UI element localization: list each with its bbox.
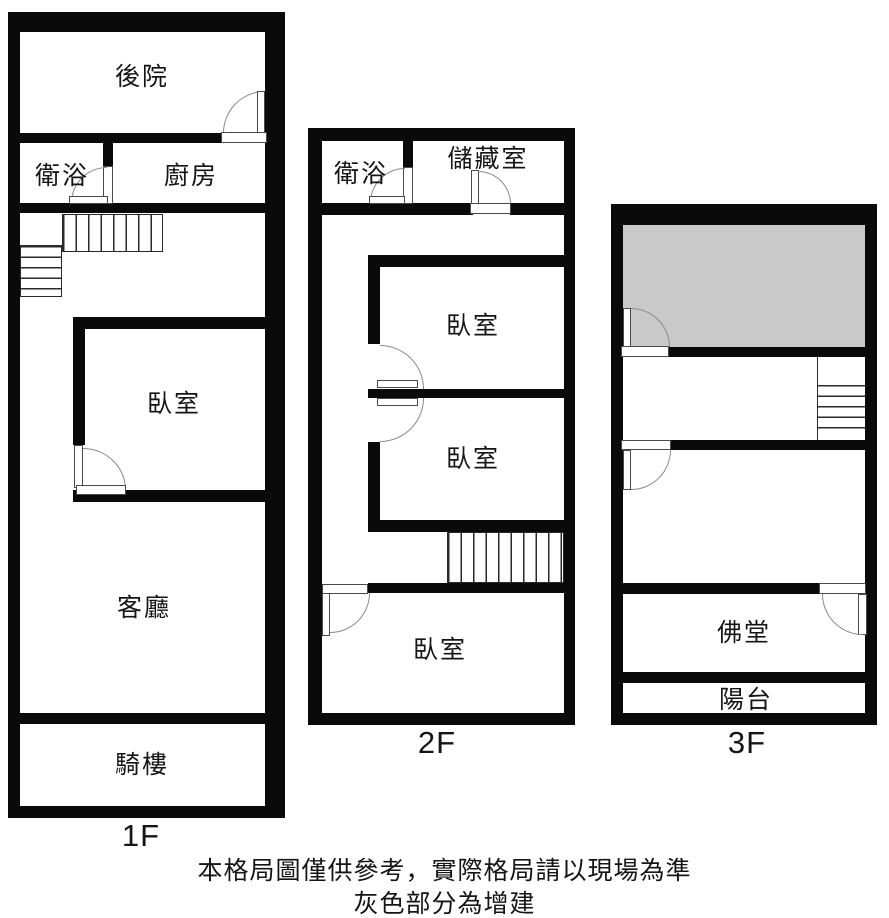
f3-staircase-treads: [817, 385, 865, 432]
f3-outer-wall-left: [611, 204, 623, 725]
f2-outer-wall-left: [308, 128, 322, 725]
f2-storage-door-arc: [478, 171, 511, 204]
f2-bedroom-c-wall-top: [368, 583, 564, 593]
f3-room-label-balcony: 陽台: [719, 680, 773, 716]
f2-room-label-bathroom: 衛浴: [334, 154, 388, 190]
f3-middle-wall: [670, 440, 865, 450]
f1-bedroom-door-leaf: [74, 445, 83, 488]
f1-outer-wall-left: [8, 12, 20, 818]
f2-bedroom-a-wall-top: [368, 255, 564, 267]
footer-legend: 灰色部分為增建: [0, 884, 889, 918]
f3-addition-door-sill: [621, 346, 669, 357]
f2-bedroom-b-door-leaf: [377, 398, 418, 406]
f3-room-door-sill: [621, 440, 671, 450]
f1-backyard-door-sill: [221, 132, 267, 143]
f2-room-label-bedroom-c: 臥室: [413, 630, 467, 666]
f2-staircase: [447, 532, 564, 583]
f2-bathroom-door-leaf: [369, 196, 405, 204]
f1-backyard-wall: [20, 133, 222, 143]
f2-toprow-wall-b: [510, 203, 564, 215]
f3-room-label-hall: 佛堂: [717, 613, 771, 649]
f2-outer-wall-right: [564, 128, 575, 725]
footer-disclaimer: 本格局圖僅供參考，實際格局請以現場為準: [0, 851, 889, 887]
f3-hall-door-arc: [822, 594, 863, 635]
f1-arcade-wall: [20, 713, 265, 724]
f2-bedroom-c-door-arc: [330, 593, 370, 633]
f1-room-label-kitchen: 廚房: [164, 156, 218, 192]
f2-bedroom-b-wall-left: [368, 442, 380, 520]
f1-bedroom-wall-top: [73, 317, 265, 329]
f1-room-label-backyard: 後院: [115, 57, 169, 93]
f2-bedrooms-divider-wall: [368, 389, 564, 398]
f1-kitchen-row-wall: [20, 203, 265, 213]
f2-outer-wall-bottom: [308, 713, 575, 725]
f1-outer-wall-bottom: [8, 806, 285, 818]
f2-bedroom-b-wall-bottom: [368, 520, 564, 532]
f2-room-label-bedroom-a: 臥室: [446, 306, 500, 342]
f1-backyard-door-leaf: [257, 91, 265, 133]
f3-outer-wall-top: [611, 204, 877, 225]
f3-outer-wall-right: [865, 204, 877, 725]
f1-room-label-bedroom: 臥室: [147, 384, 201, 420]
f1-bedroom-wall-left: [73, 329, 85, 445]
f2-room-label-storage: 儲藏室: [447, 139, 528, 175]
f3-addition-wall: [668, 347, 865, 357]
f1-bedroom-door-arc: [83, 448, 126, 490]
floor-plan: 後院 衛浴 廚房 臥室 客廳 騎樓 1F: [0, 0, 889, 918]
f2-storage-door-sill: [470, 203, 511, 214]
f1-staircase-upper-run: [62, 214, 163, 252]
f3-room-door-leaf: [623, 450, 631, 490]
f2-room-label-bedroom-b: 臥室: [446, 439, 500, 475]
f2-bedroom-a-door-leaf: [377, 380, 418, 388]
f2-bedroom-c-door-leaf: [322, 593, 330, 636]
f3-floor-label: 3F: [728, 725, 766, 761]
f3-hall-wall-top: [623, 583, 820, 594]
f1-room-label-living: 客廳: [117, 588, 171, 624]
f1-outer-wall-right: [265, 12, 285, 818]
f1-staircase-lower-run: [20, 245, 62, 297]
f3-hall-door-sill: [819, 583, 866, 594]
f1-room-label-arcade: 騎樓: [115, 745, 169, 781]
f1-bathroom-door-leaf: [69, 196, 108, 204]
f1-outer-wall-top: [8, 12, 285, 32]
f3-addition-door-leaf: [623, 308, 631, 347]
f1-floor-label: 1F: [122, 818, 160, 854]
f2-floor-label: 2F: [418, 725, 456, 761]
f2-bedroom-a-wall-left: [368, 267, 380, 344]
f1-room-label-bathroom: 衛浴: [35, 156, 89, 192]
f3-room-door-arc: [631, 450, 671, 490]
f2-outer-wall-top: [308, 128, 575, 141]
f1-bedroom-door-sill: [76, 485, 126, 495]
f2-toprow-wall-a: [322, 203, 473, 215]
